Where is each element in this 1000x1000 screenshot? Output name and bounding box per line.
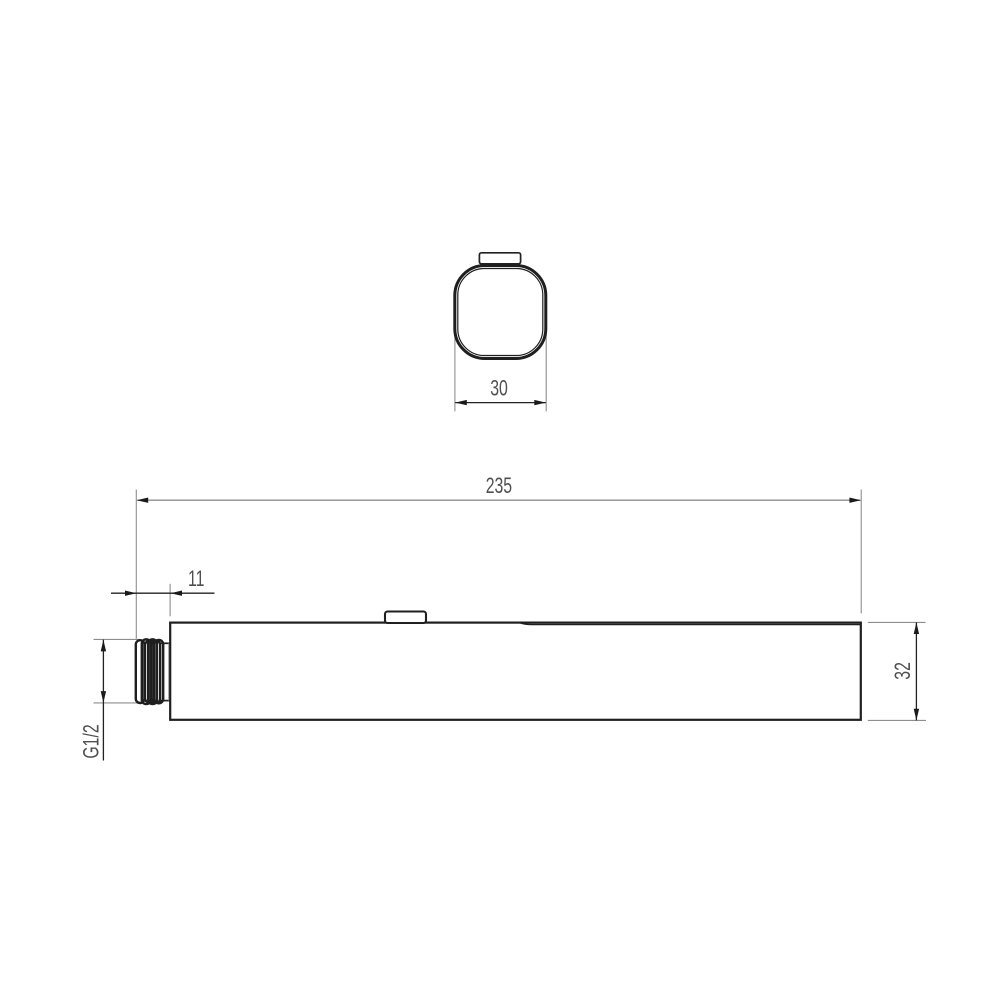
svg-text:235: 235 — [486, 475, 512, 499]
svg-text:G1/2: G1/2 — [80, 724, 104, 758]
svg-text:30: 30 — [490, 377, 508, 401]
svg-text:11: 11 — [188, 568, 204, 592]
svg-text:32: 32 — [892, 662, 916, 680]
